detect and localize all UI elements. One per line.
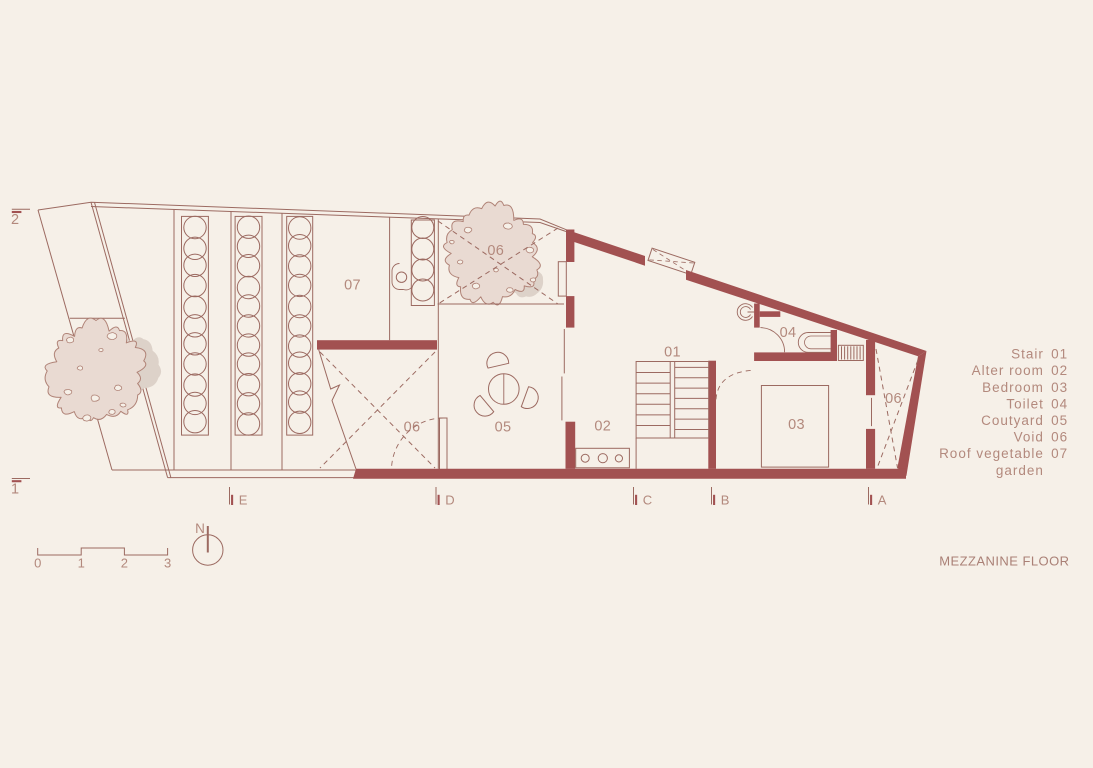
svg-text:07: 07 bbox=[1051, 446, 1068, 461]
svg-text:0: 0 bbox=[34, 555, 41, 570]
svg-text:2: 2 bbox=[11, 212, 19, 228]
svg-text:06: 06 bbox=[1051, 430, 1068, 445]
svg-text:Roof vegetable: Roof vegetable bbox=[939, 446, 1044, 461]
svg-text:06: 06 bbox=[487, 243, 504, 259]
svg-text:07: 07 bbox=[344, 278, 361, 294]
svg-text:B: B bbox=[721, 493, 730, 508]
svg-text:01: 01 bbox=[1051, 347, 1068, 362]
svg-text:06: 06 bbox=[404, 420, 421, 436]
svg-text:03: 03 bbox=[1051, 380, 1068, 395]
svg-text:Stair: Stair bbox=[1011, 347, 1044, 362]
svg-text:MEZZANINE FLOOR: MEZZANINE FLOOR bbox=[939, 554, 1069, 569]
svg-text:C: C bbox=[643, 493, 652, 508]
svg-text:Bedroom: Bedroom bbox=[982, 380, 1044, 395]
svg-text:1: 1 bbox=[78, 555, 85, 570]
svg-text:N: N bbox=[195, 521, 205, 536]
svg-text:02: 02 bbox=[1051, 363, 1068, 378]
svg-text:garden: garden bbox=[996, 463, 1044, 478]
svg-text:Coutyard: Coutyard bbox=[981, 413, 1044, 428]
svg-text:3: 3 bbox=[164, 555, 171, 570]
svg-text:E: E bbox=[239, 493, 248, 508]
svg-text:2: 2 bbox=[121, 555, 128, 570]
svg-text:Toilet: Toilet bbox=[1006, 396, 1044, 411]
svg-text:02: 02 bbox=[594, 419, 611, 435]
svg-text:Alter room: Alter room bbox=[972, 363, 1044, 378]
svg-text:A: A bbox=[878, 493, 887, 508]
svg-text:Void: Void bbox=[1014, 430, 1044, 445]
svg-text:D: D bbox=[445, 493, 454, 508]
svg-text:05: 05 bbox=[1051, 413, 1068, 428]
svg-text:04: 04 bbox=[1051, 396, 1068, 411]
svg-text:01: 01 bbox=[664, 345, 681, 361]
svg-text:1: 1 bbox=[11, 481, 19, 497]
svg-text:04: 04 bbox=[780, 325, 797, 341]
svg-text:06: 06 bbox=[885, 391, 902, 407]
svg-text:05: 05 bbox=[495, 420, 512, 436]
svg-text:03: 03 bbox=[788, 417, 805, 433]
